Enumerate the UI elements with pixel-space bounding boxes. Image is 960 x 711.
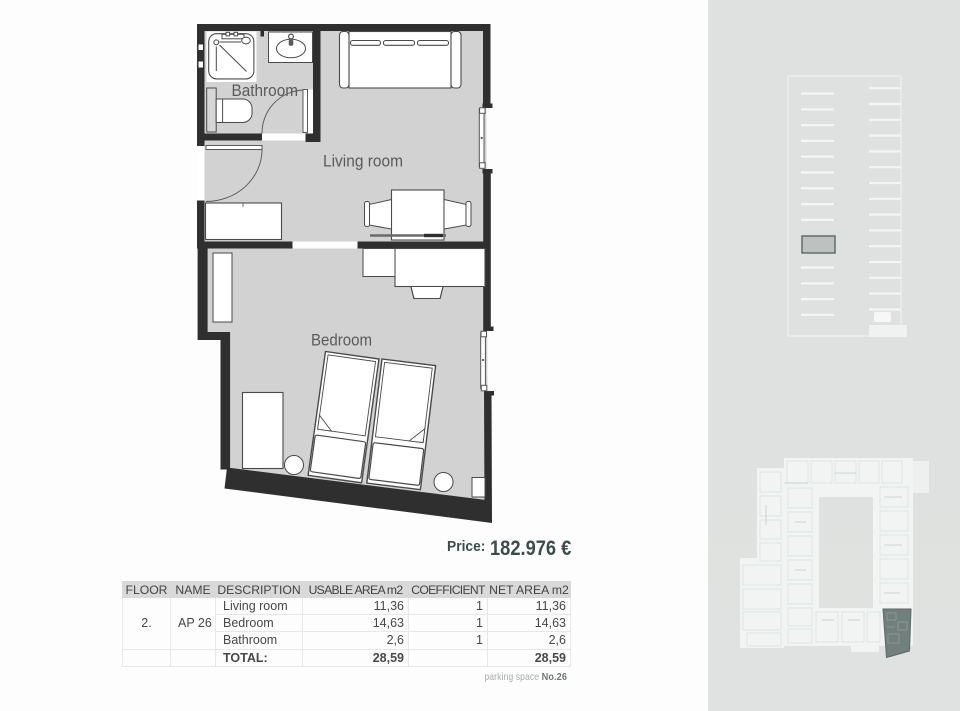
svg-text:Bedroom: Bedroom — [311, 331, 372, 350]
svg-text:Bathroom: Bathroom — [232, 81, 299, 100]
svg-text:Living room: Living room — [323, 152, 403, 171]
